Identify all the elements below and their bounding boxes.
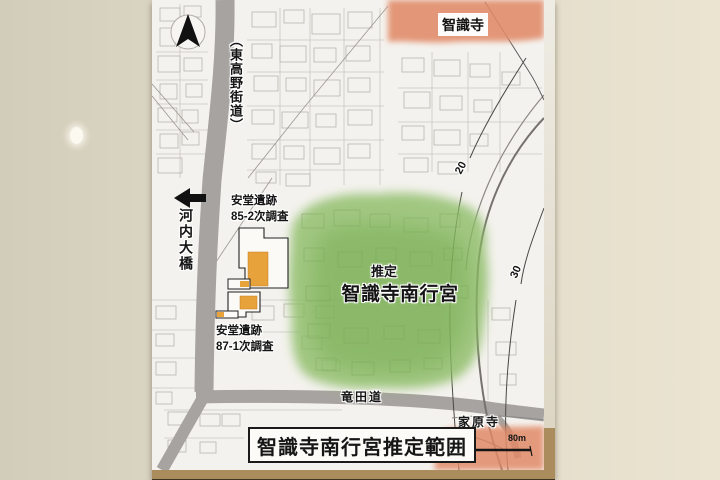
kawachi-ohashi-label: 河内大橋 <box>174 208 194 272</box>
north-arrow-icon <box>171 14 205 49</box>
scale-end-label: 80m <box>508 433 526 443</box>
map-caption-text: 智識寺南行宮推定範囲 <box>257 431 467 460</box>
map-display-panel: 智識寺 （東高野街道） 河内大橋 安堂遺跡 85-2次調査 安堂遺跡 87-1次… <box>152 0 555 480</box>
site85-label-line2: 85-2次調査 <box>231 208 289 224</box>
wall-pin-dot <box>70 127 83 144</box>
higashikoya-road-label: （東高野街道） <box>226 34 245 132</box>
chishikiji-label: 智識寺 <box>438 13 488 36</box>
panel-side-edge <box>544 0 555 428</box>
site87-label-line1: 安堂遺跡 <box>216 322 262 338</box>
palace-label: 智識寺南行宮 <box>312 279 488 306</box>
map-panel-paper: 智識寺 （東高野街道） 河内大橋 安堂遺跡 85-2次調査 安堂遺跡 87-1次… <box>152 0 544 470</box>
map-caption-box: 智識寺南行宮推定範囲 <box>248 427 476 463</box>
site87-label-line2: 87-1次調査 <box>216 338 274 354</box>
photo-of-map-display: { "labels": { "temple_top": "智識寺", "road… <box>0 0 720 480</box>
estimated-label: 推定 <box>362 261 406 280</box>
site85-label-line1: 安堂遺跡 <box>231 192 277 208</box>
tatsuta-road-label: 竜田道 <box>341 388 383 405</box>
